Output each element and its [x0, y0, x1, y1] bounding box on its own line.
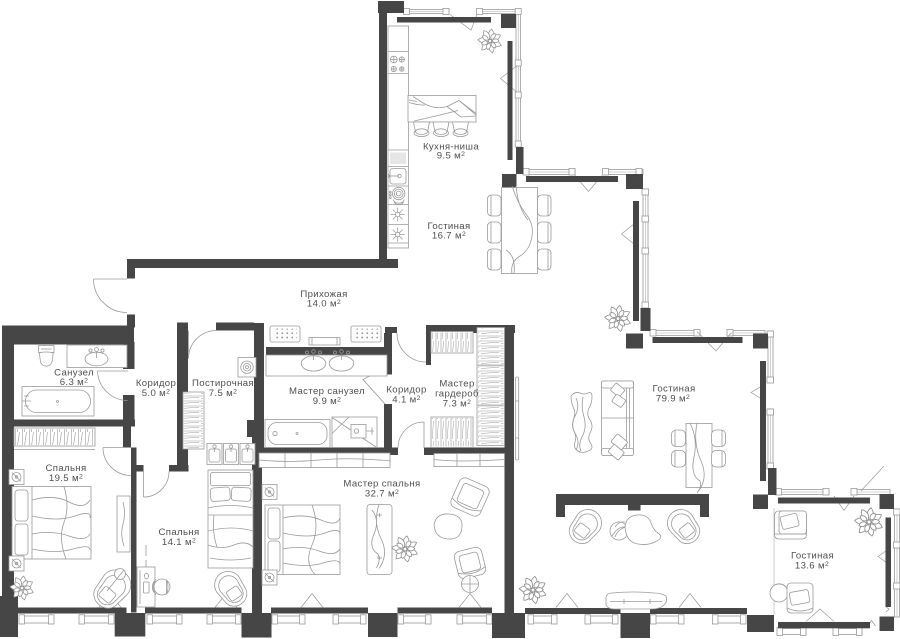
- svg-text:4.1 м2: 4.1 м2: [392, 395, 421, 406]
- svg-text:79.9 м2: 79.9 м2: [656, 394, 690, 405]
- svg-text:6.3 м2: 6.3 м2: [60, 377, 89, 388]
- svg-text:9.9 м2: 9.9 м2: [313, 396, 342, 407]
- svg-text:19.5 м2: 19.5 м2: [49, 473, 83, 484]
- svg-text:14.1 м2: 14.1 м2: [162, 537, 196, 548]
- svg-text:7.5 м2: 7.5 м2: [209, 388, 238, 399]
- svg-text:7.3 м2: 7.3 м2: [443, 399, 472, 410]
- svg-text:16.7 м2: 16.7 м2: [432, 231, 466, 242]
- svg-text:13.6 м2: 13.6 м2: [795, 561, 829, 572]
- svg-text:14.0 м2: 14.0 м2: [307, 299, 341, 310]
- svg-text:32.7 м2: 32.7 м2: [365, 489, 399, 500]
- svg-text:9.5 м2: 9.5 м2: [437, 151, 466, 162]
- svg-text:5.0 м2: 5.0 м2: [142, 388, 171, 399]
